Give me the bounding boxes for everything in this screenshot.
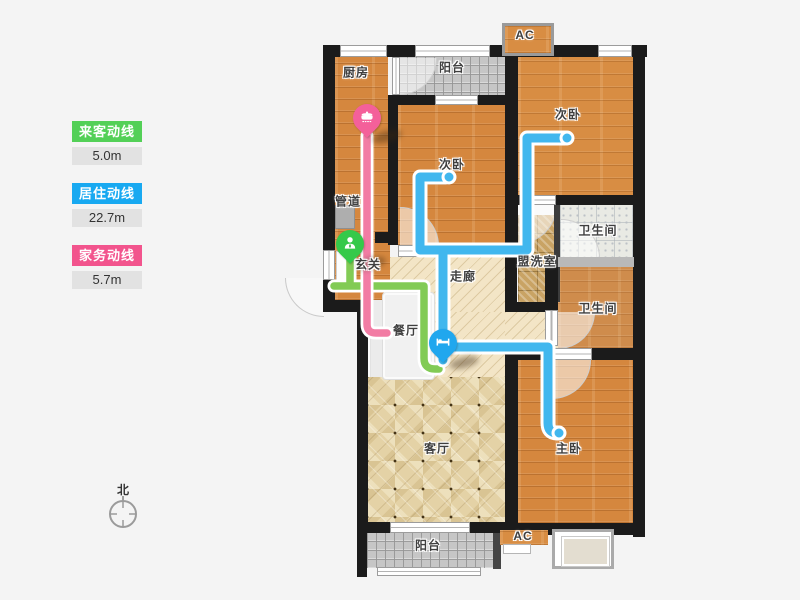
room-label-bathroom-bottom: 卫生间 <box>578 300 617 317</box>
bay-window <box>552 529 614 569</box>
wall <box>388 95 398 245</box>
wall <box>478 95 505 105</box>
room-label-balcony-top: 阳台 <box>439 59 465 76</box>
room-label-bedroom-topright: 次卧 <box>555 106 581 123</box>
room-label-kitchen: 厨房 <box>343 64 369 81</box>
compass-north-label: 北 <box>117 482 129 497</box>
wall <box>398 95 435 105</box>
floorplan-viewer: 厨房 阳台 AC 次卧 次卧 管道 玄关 走廊 盟洗室 卫生间 卫生间 餐厅 客… <box>0 0 800 600</box>
window <box>415 45 490 57</box>
window <box>435 95 478 105</box>
wall <box>357 310 368 532</box>
legend-resident-label: 居住动线 <box>72 183 142 204</box>
window <box>340 45 387 57</box>
entry-door-arc <box>285 278 324 317</box>
wall <box>505 360 518 523</box>
wall <box>633 45 645 537</box>
room-label-balcony-bottom: 阳台 <box>415 537 441 554</box>
bed-icon <box>435 334 451 350</box>
room-label-corridor: 走廊 <box>450 268 476 285</box>
room-label-master: 主卧 <box>556 440 582 457</box>
room-label-bathroom-top: 卫生间 <box>578 222 617 239</box>
door-sill <box>392 57 400 95</box>
room-label-living: 客厅 <box>424 440 450 457</box>
room-label-washroom: 盟洗室 <box>517 253 556 270</box>
legend-resident-value: 22.7m <box>72 209 142 227</box>
wall <box>592 348 645 360</box>
entry-door-sill <box>323 250 335 280</box>
wall <box>545 267 558 312</box>
door-sill <box>552 348 592 360</box>
bathroom-sill <box>558 257 634 267</box>
room-label-pipe-duct: 管道 <box>335 193 361 210</box>
room-label-entry: 玄关 <box>355 256 381 273</box>
room-label-ac-top: AC <box>515 28 534 42</box>
room-label-bedroom-center: 次卧 <box>439 156 465 173</box>
legend-housework-value: 5.7m <box>72 271 142 289</box>
wall <box>505 195 520 205</box>
door-sill <box>520 195 556 205</box>
wall <box>505 348 552 360</box>
legend-item-housework[interactable]: 家务动线 5.7m <box>72 245 142 289</box>
wall <box>375 232 398 243</box>
door-sill <box>545 310 558 346</box>
legend-item-visitor[interactable]: 来客动线 5.0m <box>72 121 142 165</box>
window <box>390 522 470 533</box>
housework-pin[interactable] <box>353 104 381 142</box>
resident-pin[interactable] <box>429 329 457 367</box>
door-sill <box>398 245 437 257</box>
legend-item-resident[interactable]: 居住动线 22.7m <box>72 183 142 227</box>
wall <box>505 45 518 245</box>
bay-window-inner <box>562 537 609 566</box>
room-label-ac-bottom: AC <box>513 529 532 543</box>
room-bedroom-topright-floor <box>518 57 633 205</box>
person-icon <box>342 235 358 251</box>
compass: 北 <box>90 478 156 544</box>
wall <box>357 532 367 577</box>
legend-visitor-value: 5.0m <box>72 147 142 165</box>
legend-housework-label: 家务动线 <box>72 245 142 266</box>
pot-icon <box>359 109 375 125</box>
wall <box>437 245 505 257</box>
ac-bottom-sill <box>504 545 530 553</box>
legend-visitor-label: 来客动线 <box>72 121 142 142</box>
wall <box>556 195 645 205</box>
window <box>598 45 632 57</box>
room-label-dining: 餐厅 <box>393 322 419 339</box>
window <box>377 567 481 576</box>
